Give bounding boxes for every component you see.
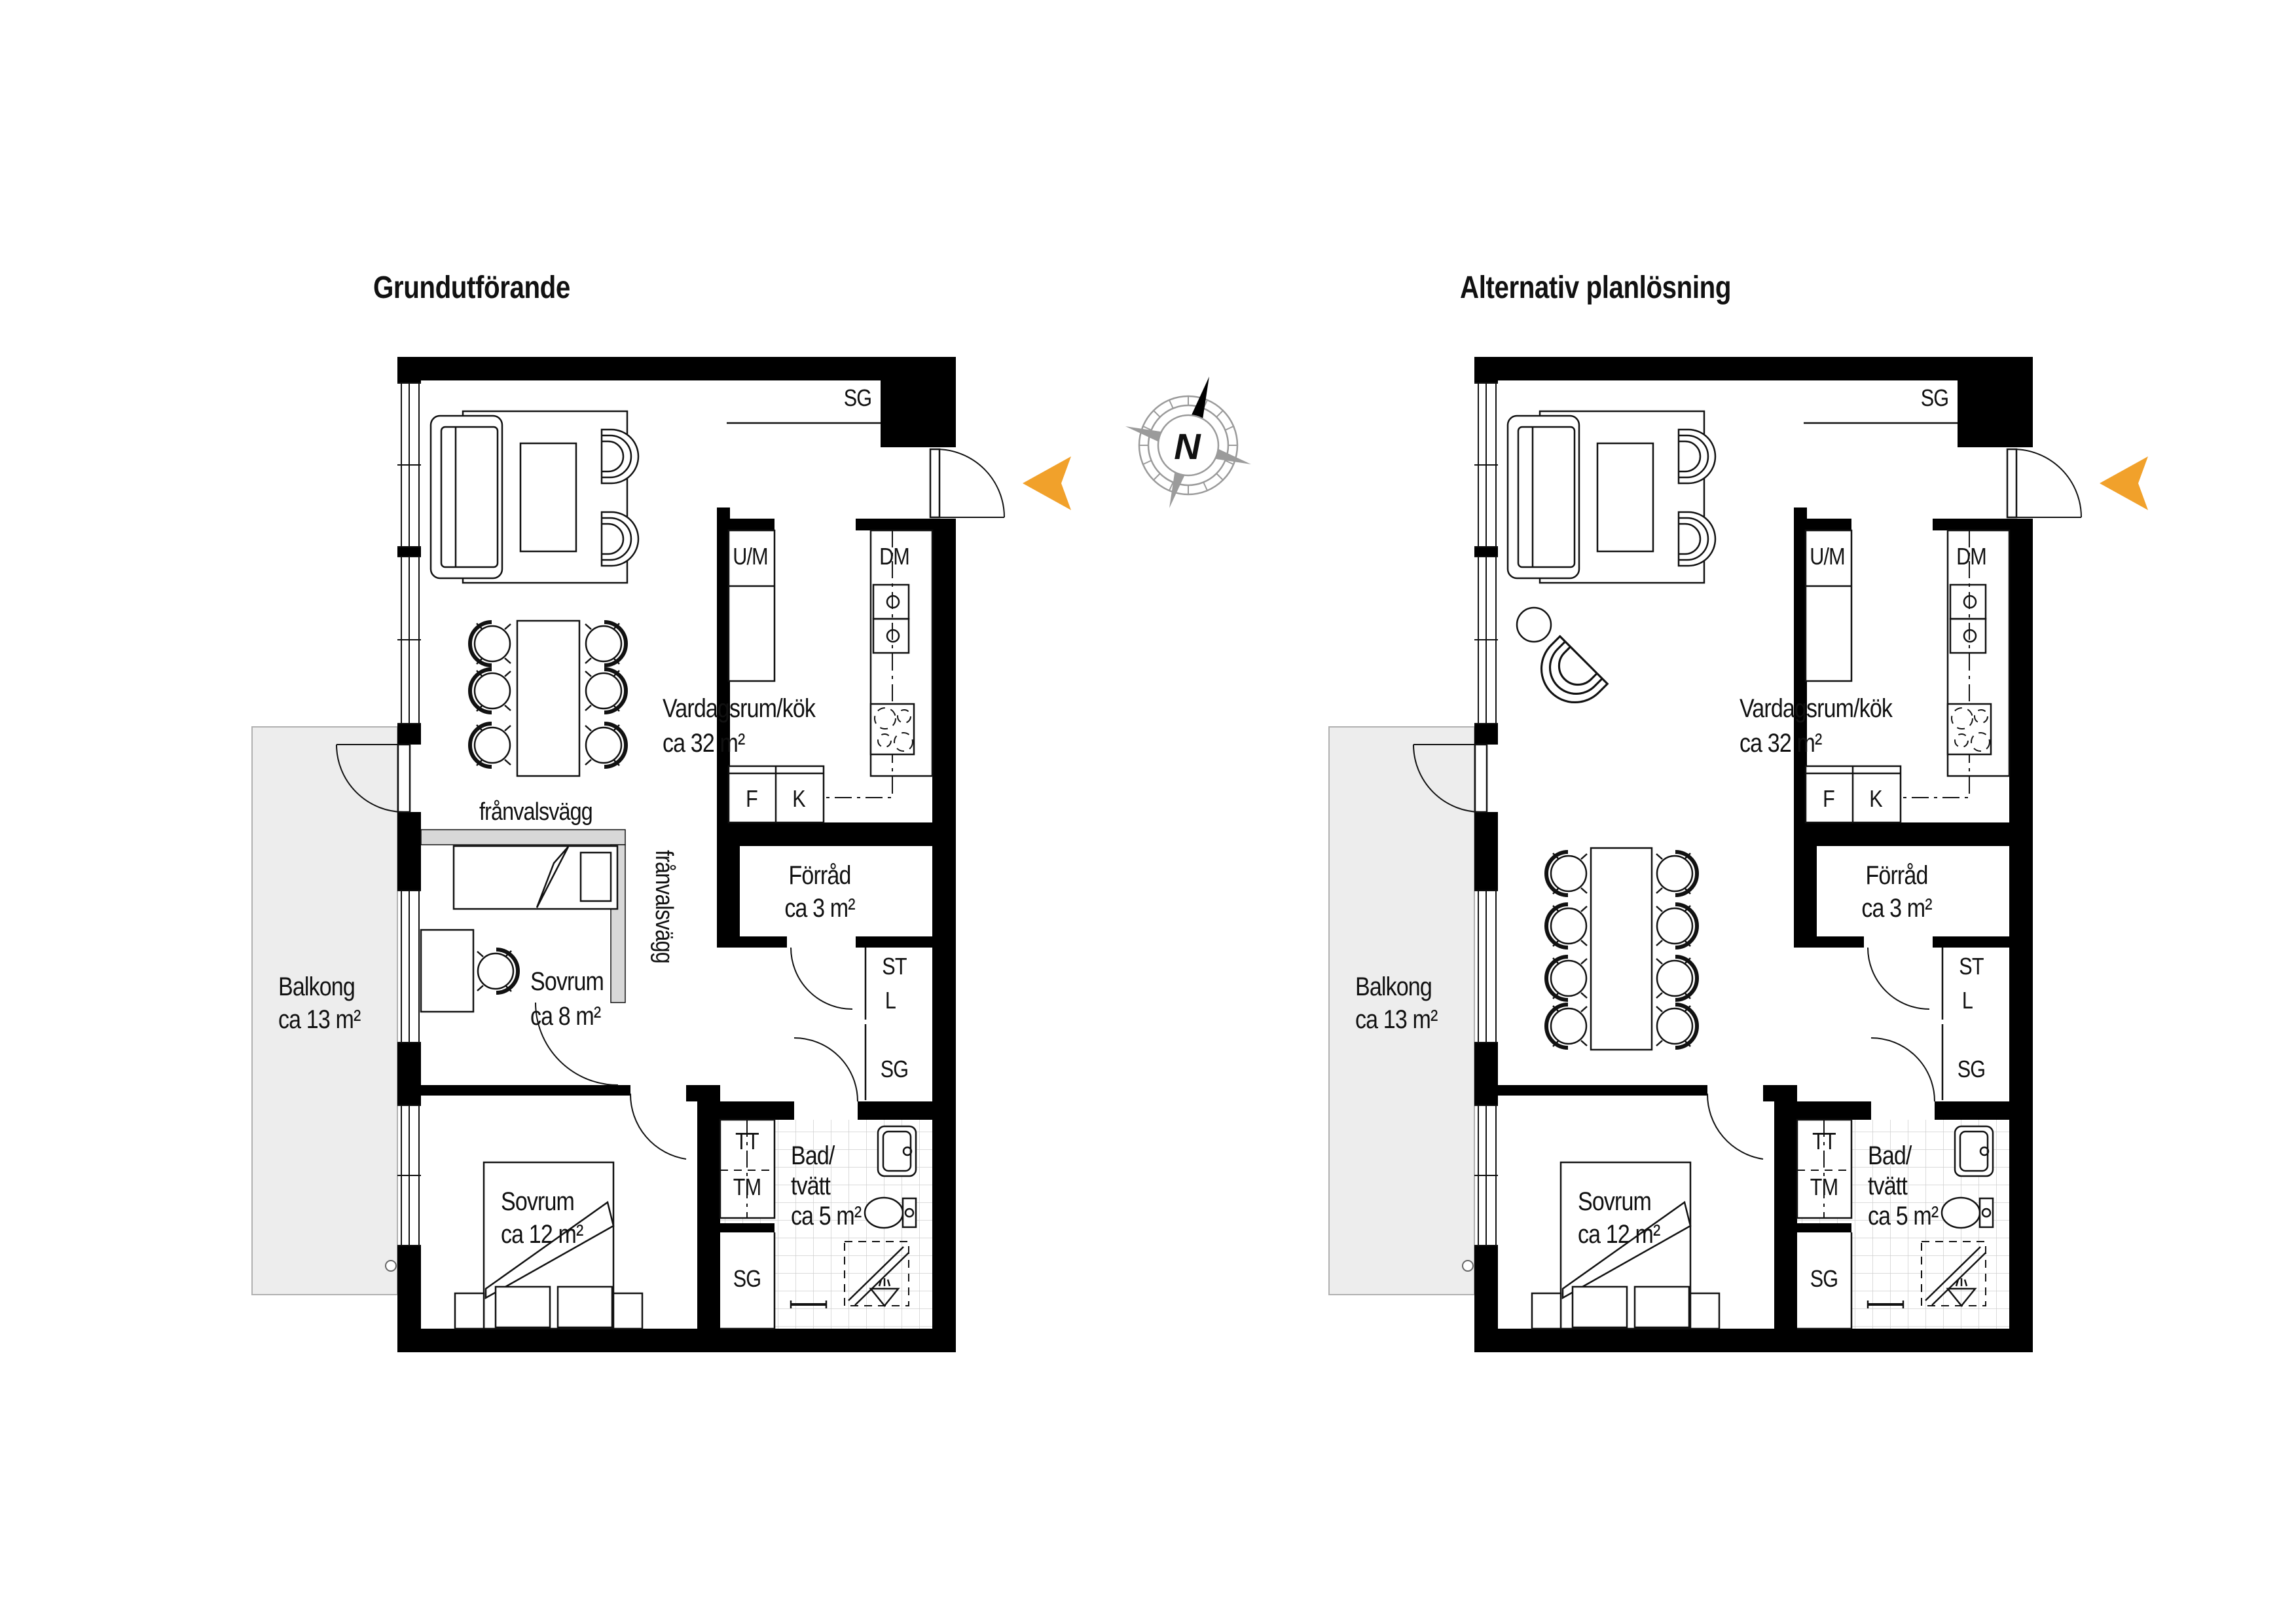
label-tt: TT (735, 1129, 759, 1155)
plan-title-left: Grundutförande (373, 270, 570, 305)
label-tm: TM (733, 1175, 761, 1201)
label-tm: TM (1810, 1175, 1838, 1201)
room-area-bedroom-large: ca 12 m² (1578, 1219, 1660, 1248)
room-area-bath: ca 5 m² (791, 1200, 862, 1230)
room-label-bath-2: tvätt (791, 1170, 831, 1200)
room-label-bedroom-small: Sovrum (530, 966, 604, 995)
room-label-bedroom-large: Sovrum (501, 1186, 574, 1215)
room-label-living: Vardagsrum/kök (1740, 693, 1893, 722)
room-area-storage: ca 3 m² (784, 893, 855, 922)
label-st: ST (882, 954, 907, 980)
label-dm: DM (879, 544, 909, 570)
label-optout-vertical: frånvalsvägg (650, 850, 678, 963)
room-label-bath-1: Bad/ (1868, 1140, 1912, 1170)
room-label-living: Vardagsrum/kök (663, 693, 816, 722)
room-label-balcony: Balkong (278, 971, 355, 1001)
label-optout-horizontal: frånvalsvägg (479, 798, 592, 826)
label-tt: TT (1812, 1129, 1836, 1155)
label-sg-mid: SG (881, 1057, 908, 1083)
compass-rose: N (1125, 377, 1251, 508)
room-label-bedroom-large: Sovrum (1578, 1186, 1651, 1215)
room-area-balcony: ca 13 m² (1355, 1004, 1438, 1033)
label-um: U/M (733, 544, 768, 570)
label-sg-bath: SG (733, 1266, 761, 1293)
room-area-balcony: ca 13 m² (278, 1004, 361, 1033)
room-area-living: ca 32 m² (1740, 728, 1822, 757)
floorplan-drawing: Grundutförande SG U/M DM Vardagsrum/kök (0, 0, 2296, 1624)
room-area-bath: ca 5 m² (1868, 1200, 1939, 1230)
plan-grundutforande: Grundutförande SG U/M DM Vardagsrum/kök (252, 270, 1071, 1352)
label-f: F (746, 786, 757, 813)
room-area-living: ca 32 m² (663, 728, 745, 757)
label-sg-mid: SG (1958, 1057, 1985, 1083)
label-k: K (1869, 786, 1882, 813)
floorplan-page: Grundutförande SG U/M DM Vardagsrum/kök (0, 0, 2296, 1624)
dining-set-6 (470, 621, 626, 776)
room-label-bath-2: tvätt (1868, 1170, 1908, 1200)
plan-title-right: Alternativ planlösning (1460, 270, 1731, 305)
room-label-balcony: Balkong (1355, 971, 1432, 1001)
label-l: L (885, 988, 896, 1014)
label-l: L (1962, 988, 1973, 1014)
lounge-corner (1517, 608, 1607, 716)
room-area-bedroom-small: ca 8 m² (530, 1001, 601, 1030)
dining-set-8 (1546, 848, 1697, 1050)
label-st: ST (1959, 954, 1984, 980)
room-label-bath-1: Bad/ (791, 1140, 835, 1170)
room-label-storage: Förråd (1865, 860, 1927, 889)
plan-alternativ: Alternativ planlösning SG U/M DM Vardags… (1329, 270, 2148, 1352)
room-area-bedroom-large: ca 12 m² (501, 1219, 583, 1248)
room-area-storage: ca 3 m² (1861, 893, 1932, 922)
label-um: U/M (1810, 544, 1845, 570)
label-sg-hall: SG (844, 386, 871, 412)
label-dm: DM (1956, 544, 1986, 570)
room-label-storage: Förråd (788, 860, 850, 889)
label-sg-hall: SG (1921, 386, 1948, 412)
compass-north-label: N (1174, 426, 1201, 467)
label-f: F (1823, 786, 1834, 813)
label-sg-bath: SG (1810, 1266, 1838, 1293)
label-k: K (792, 786, 805, 813)
